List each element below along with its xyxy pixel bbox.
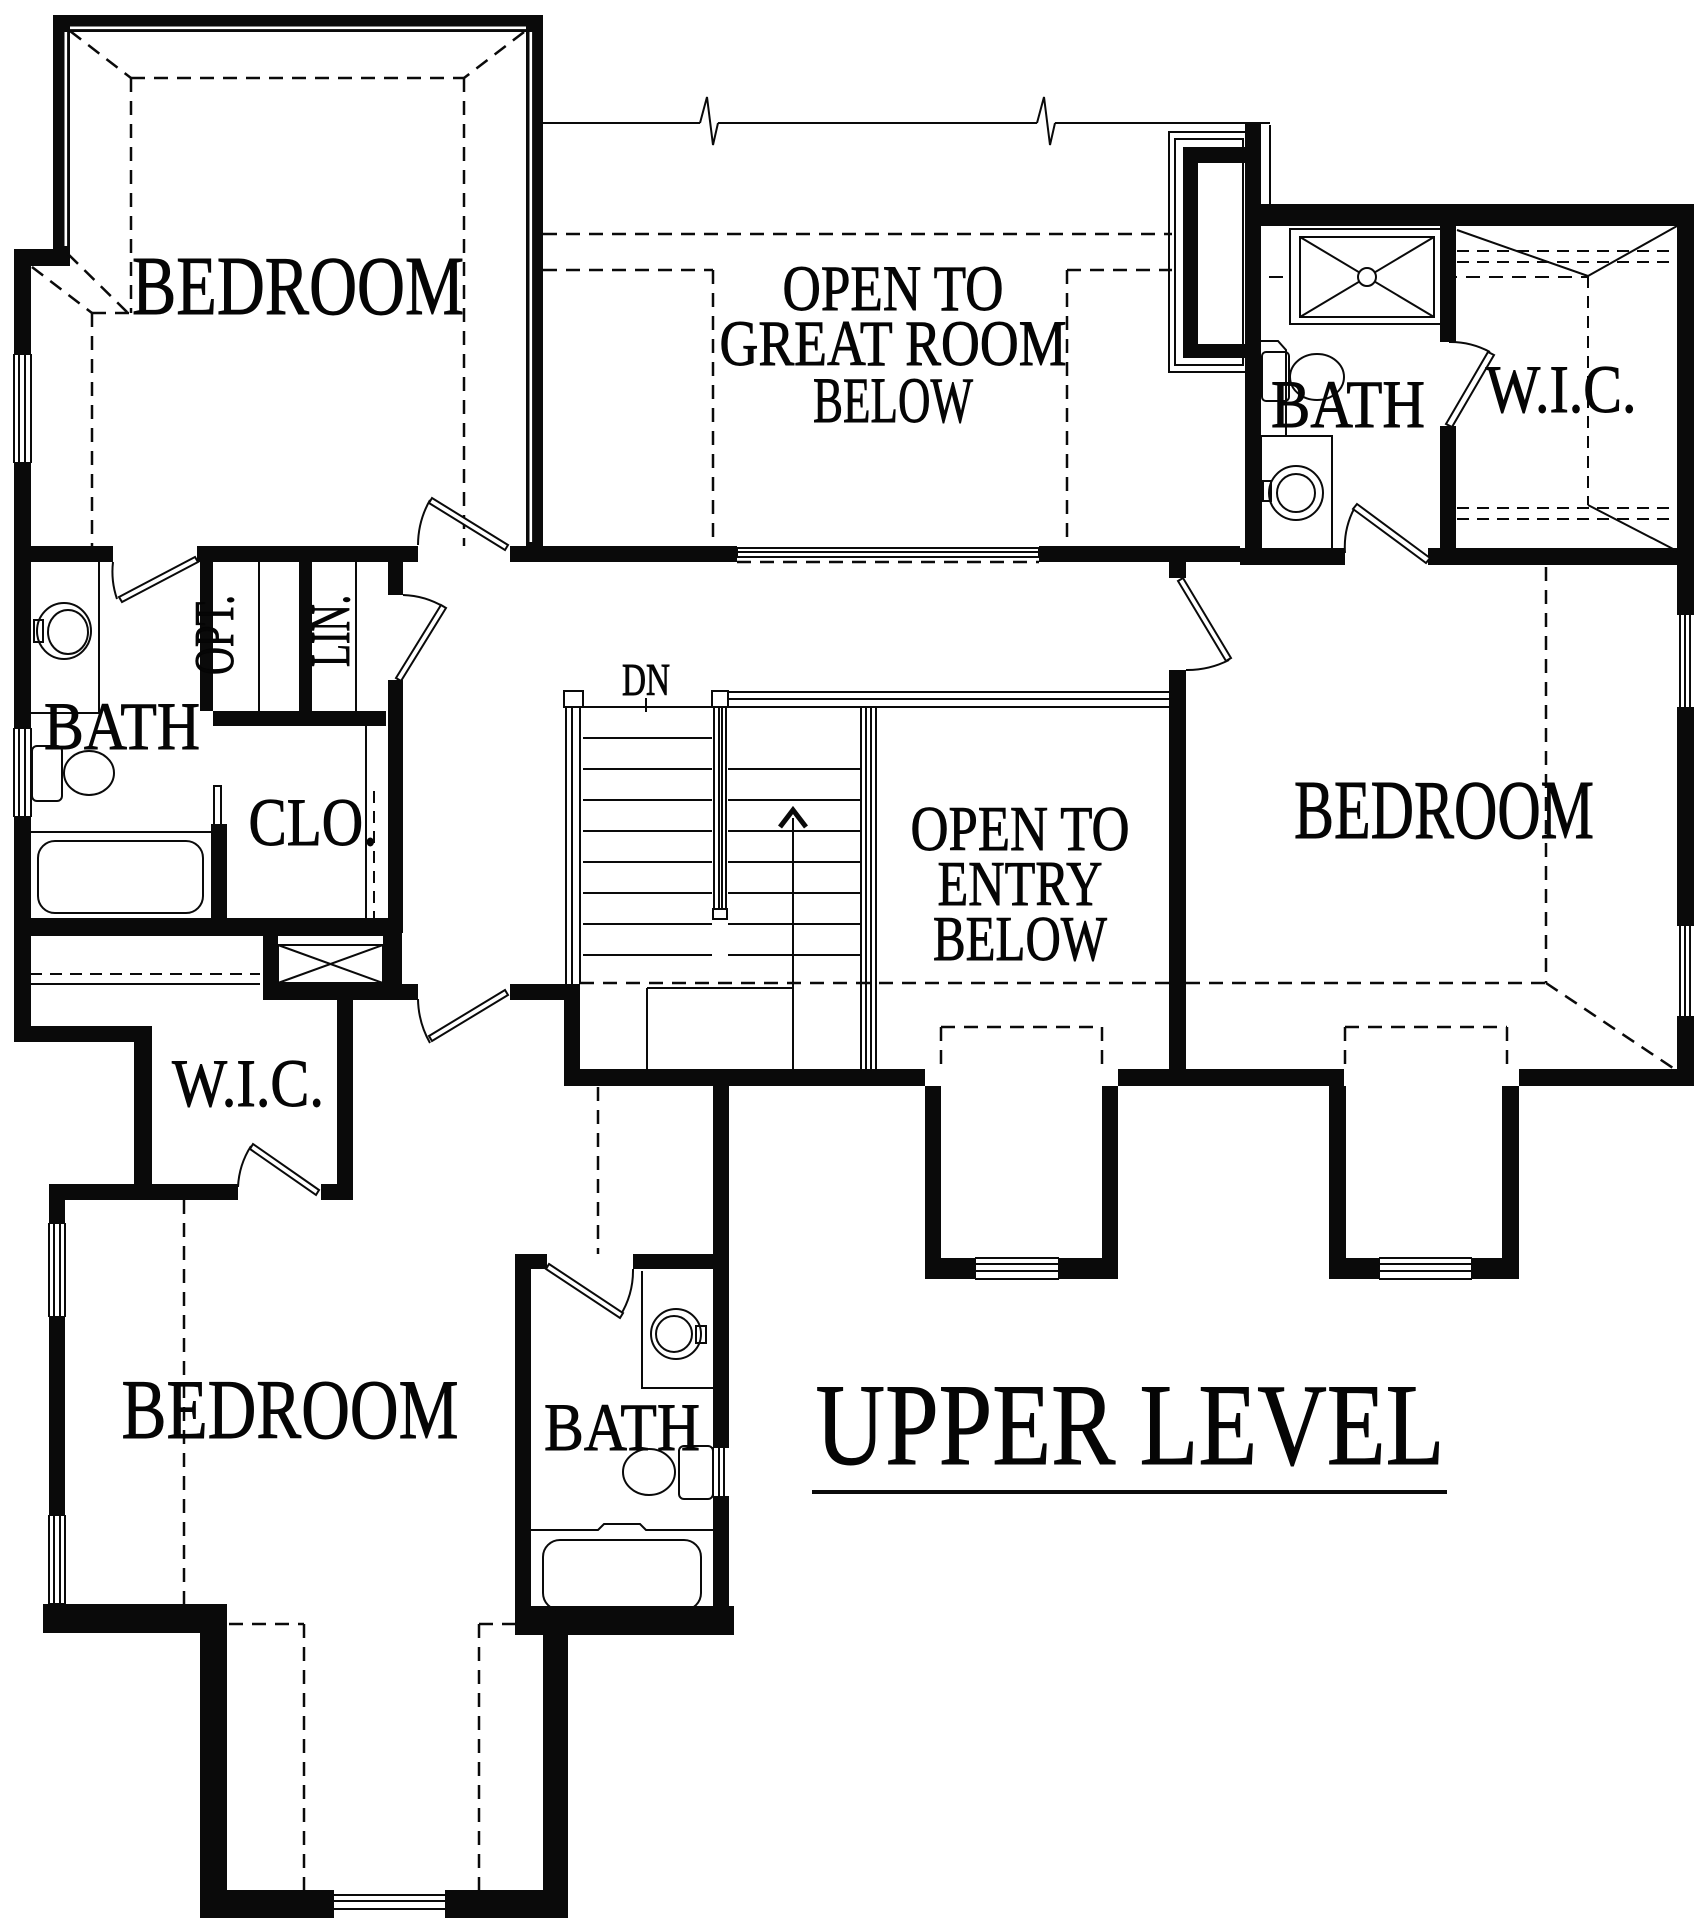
svg-text:BELOW: BELOW — [813, 365, 973, 437]
svg-text:UPPER LEVEL: UPPER LEVEL — [816, 1361, 1445, 1490]
svg-text:BATH: BATH — [1271, 366, 1425, 442]
svg-text:BATH: BATH — [44, 688, 200, 764]
svg-text:OPT.: OPT. — [184, 595, 246, 675]
svg-text:W.I.C.: W.I.C. — [172, 1045, 324, 1121]
svg-text:BEDROOM: BEDROOM — [132, 240, 464, 333]
svg-text:BATH: BATH — [544, 1389, 700, 1465]
svg-text:DN: DN — [622, 655, 670, 705]
svg-text:CLO.: CLO. — [249, 784, 378, 860]
svg-text:BEDROOM: BEDROOM — [1294, 764, 1594, 857]
svg-text:W.I.C.: W.I.C. — [1486, 351, 1637, 427]
svg-text:BEDROOM: BEDROOM — [122, 1363, 459, 1457]
svg-text:LIN.: LIN. — [300, 595, 362, 667]
svg-text:BELOW: BELOW — [933, 904, 1107, 974]
